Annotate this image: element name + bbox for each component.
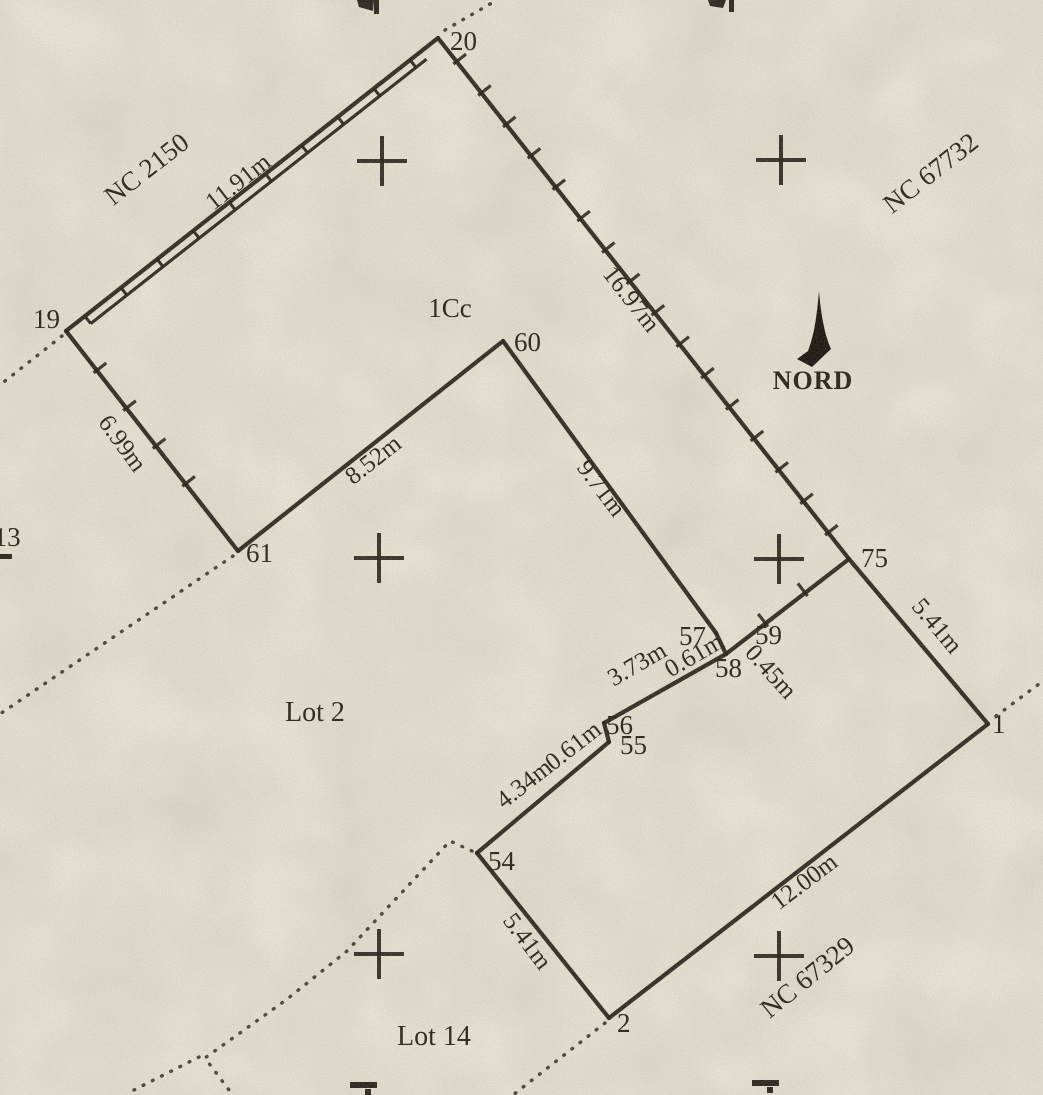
point-label-59: 59 — [755, 620, 782, 650]
cutoff-cross-bottom-left — [350, 1082, 377, 1088]
label-parcel-1cc: 1Cc — [428, 293, 472, 323]
cadastral-plan-svg: NC 215011.91mNC 6773216.97m6.99m8.52m9.7… — [0, 0, 1043, 1095]
scanned-survey-plan: NC 215011.91mNC 6773216.97m6.99m8.52m9.7… — [0, 0, 1043, 1095]
cutoff-cross-bottom-right-stub — [767, 1087, 773, 1093]
label-lot-14: Lot 14 — [397, 1021, 471, 1052]
point-label-58: 58 — [715, 653, 742, 683]
cutoff-cross-bottom-right — [752, 1080, 779, 1086]
point-label-61: 61 — [246, 538, 273, 568]
label-lot-13-cutoff: t 13 — [0, 522, 21, 552]
label-lot-2: Lot 2 — [285, 697, 345, 728]
point-label-2: 2 — [617, 1008, 631, 1038]
point-label-54: 54 — [488, 846, 516, 876]
label-north-label: NORD — [773, 366, 854, 395]
point-label-57: 57 — [679, 621, 706, 651]
point-label-55: 55 — [620, 730, 647, 760]
cutoff-cross-bottom-left-stub — [365, 1089, 371, 1095]
point-label-1: 1 — [992, 709, 1006, 739]
point-label-60: 60 — [514, 327, 541, 357]
cutoff-cross-left-edge — [0, 554, 12, 559]
cutoff-mark-top-right-bar — [729, 0, 734, 12]
point-label-20: 20 — [450, 26, 477, 56]
point-label-75: 75 — [861, 543, 888, 573]
cutoff-mark-top-left-bar — [374, 0, 379, 14]
point-label-19: 19 — [33, 304, 60, 334]
